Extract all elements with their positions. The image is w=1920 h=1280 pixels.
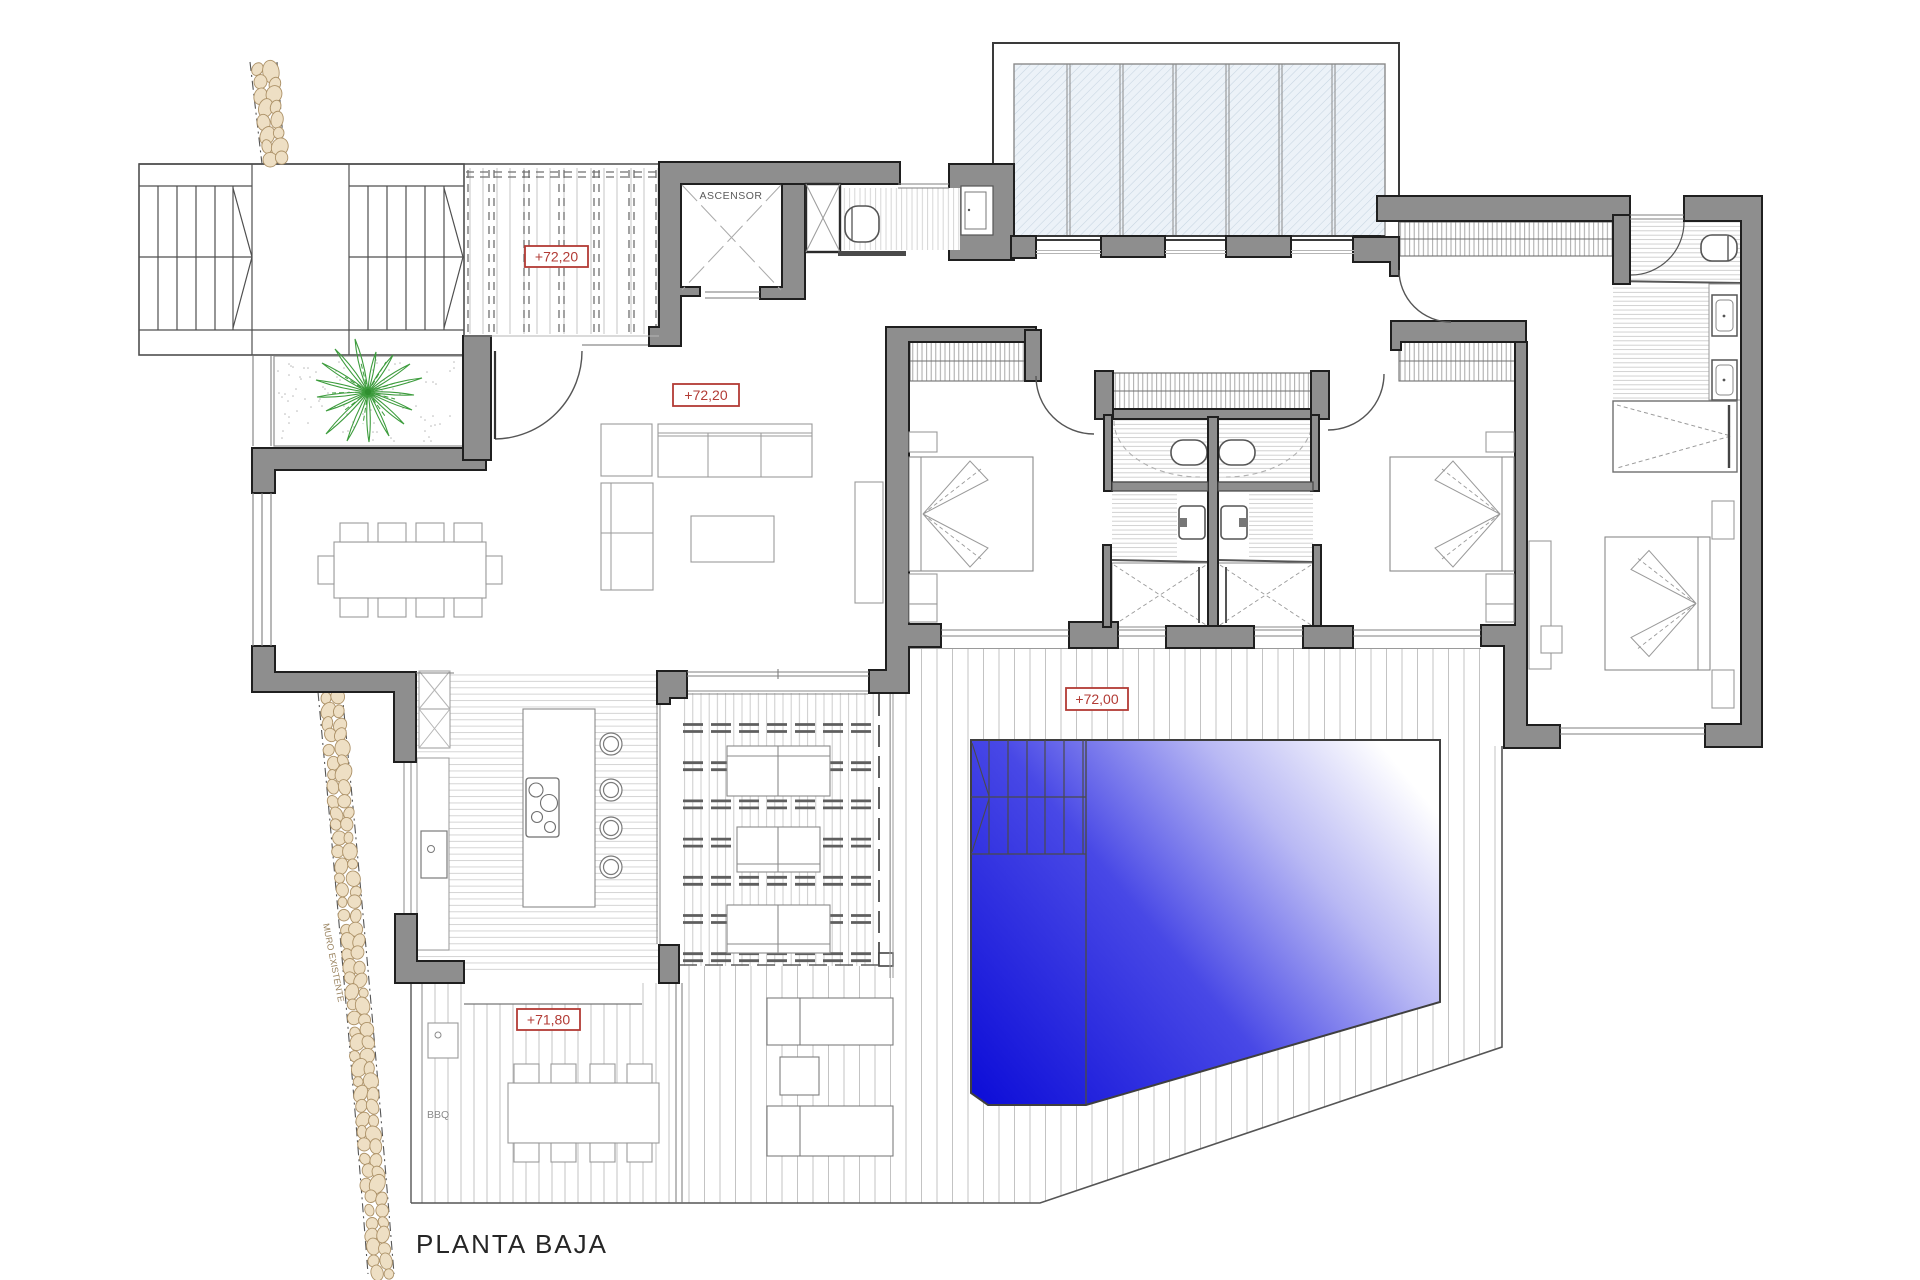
svg-text:PLANTA BAJA: PLANTA BAJA bbox=[416, 1229, 608, 1259]
svg-text:+71,80: +71,80 bbox=[527, 1012, 570, 1028]
svg-text:+72,00: +72,00 bbox=[1075, 691, 1118, 707]
svg-text:BBQ: BBQ bbox=[427, 1109, 449, 1121]
svg-text:ASCENSOR: ASCENSOR bbox=[700, 190, 763, 202]
svg-text:+72,20: +72,20 bbox=[535, 249, 578, 265]
svg-text:+72,20: +72,20 bbox=[684, 387, 727, 403]
